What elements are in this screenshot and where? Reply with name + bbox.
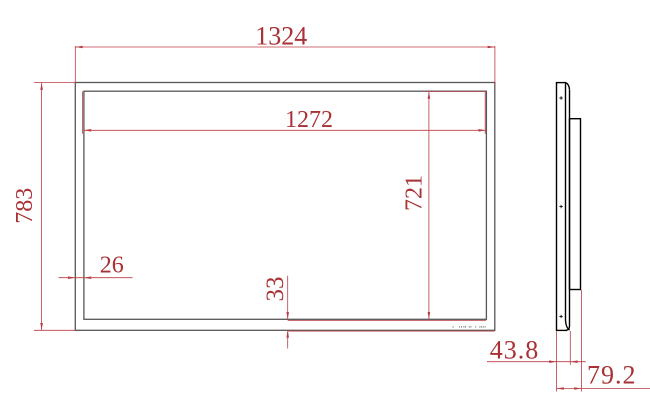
svg-text:26: 26	[100, 253, 124, 279]
svg-text:783: 783	[12, 188, 38, 224]
svg-text:43.8: 43.8	[490, 336, 540, 365]
svg-text:33: 33	[262, 277, 289, 302]
svg-text:1324: 1324	[255, 22, 307, 51]
svg-text:721: 721	[401, 175, 427, 211]
svg-text:1272: 1272	[285, 107, 333, 133]
svg-text:79.2: 79.2	[587, 361, 637, 390]
